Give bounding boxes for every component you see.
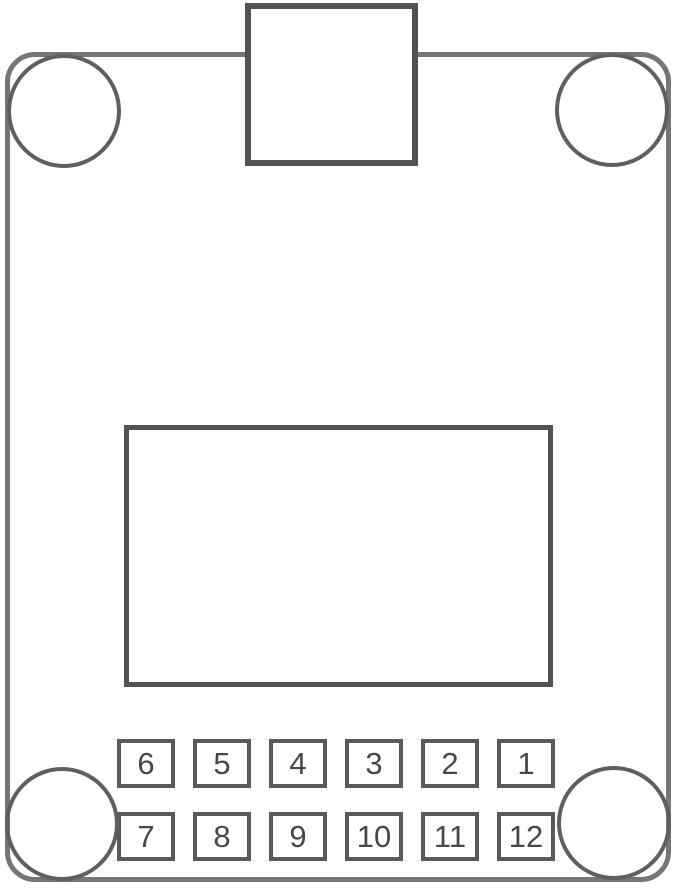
pin-1: 1 xyxy=(497,739,555,788)
pin-8: 8 xyxy=(193,812,251,861)
mounting-hole-bottom-left xyxy=(5,767,119,881)
pin-row-bottom: 7 8 9 10 11 12 xyxy=(117,812,555,861)
pin-2: 2 xyxy=(421,739,479,788)
pin-3: 3 xyxy=(345,739,403,788)
top-connector-block xyxy=(245,3,418,166)
pin-4: 4 xyxy=(269,739,327,788)
module-diagram: 6 5 4 3 2 1 7 8 9 10 11 12 xyxy=(0,0,676,889)
display-rect xyxy=(124,425,553,687)
pin-row-top: 6 5 4 3 2 1 xyxy=(117,739,555,788)
pin-11: 11 xyxy=(421,812,479,861)
mounting-hole-top-right xyxy=(555,53,669,167)
pin-12: 12 xyxy=(497,812,555,861)
pin-5: 5 xyxy=(193,739,251,788)
mounting-hole-top-left xyxy=(7,54,121,168)
pin-10: 10 xyxy=(345,812,403,861)
pin-6: 6 xyxy=(117,739,175,788)
pin-7: 7 xyxy=(117,812,175,861)
mounting-hole-bottom-right xyxy=(557,766,671,880)
pin-9: 9 xyxy=(269,812,327,861)
